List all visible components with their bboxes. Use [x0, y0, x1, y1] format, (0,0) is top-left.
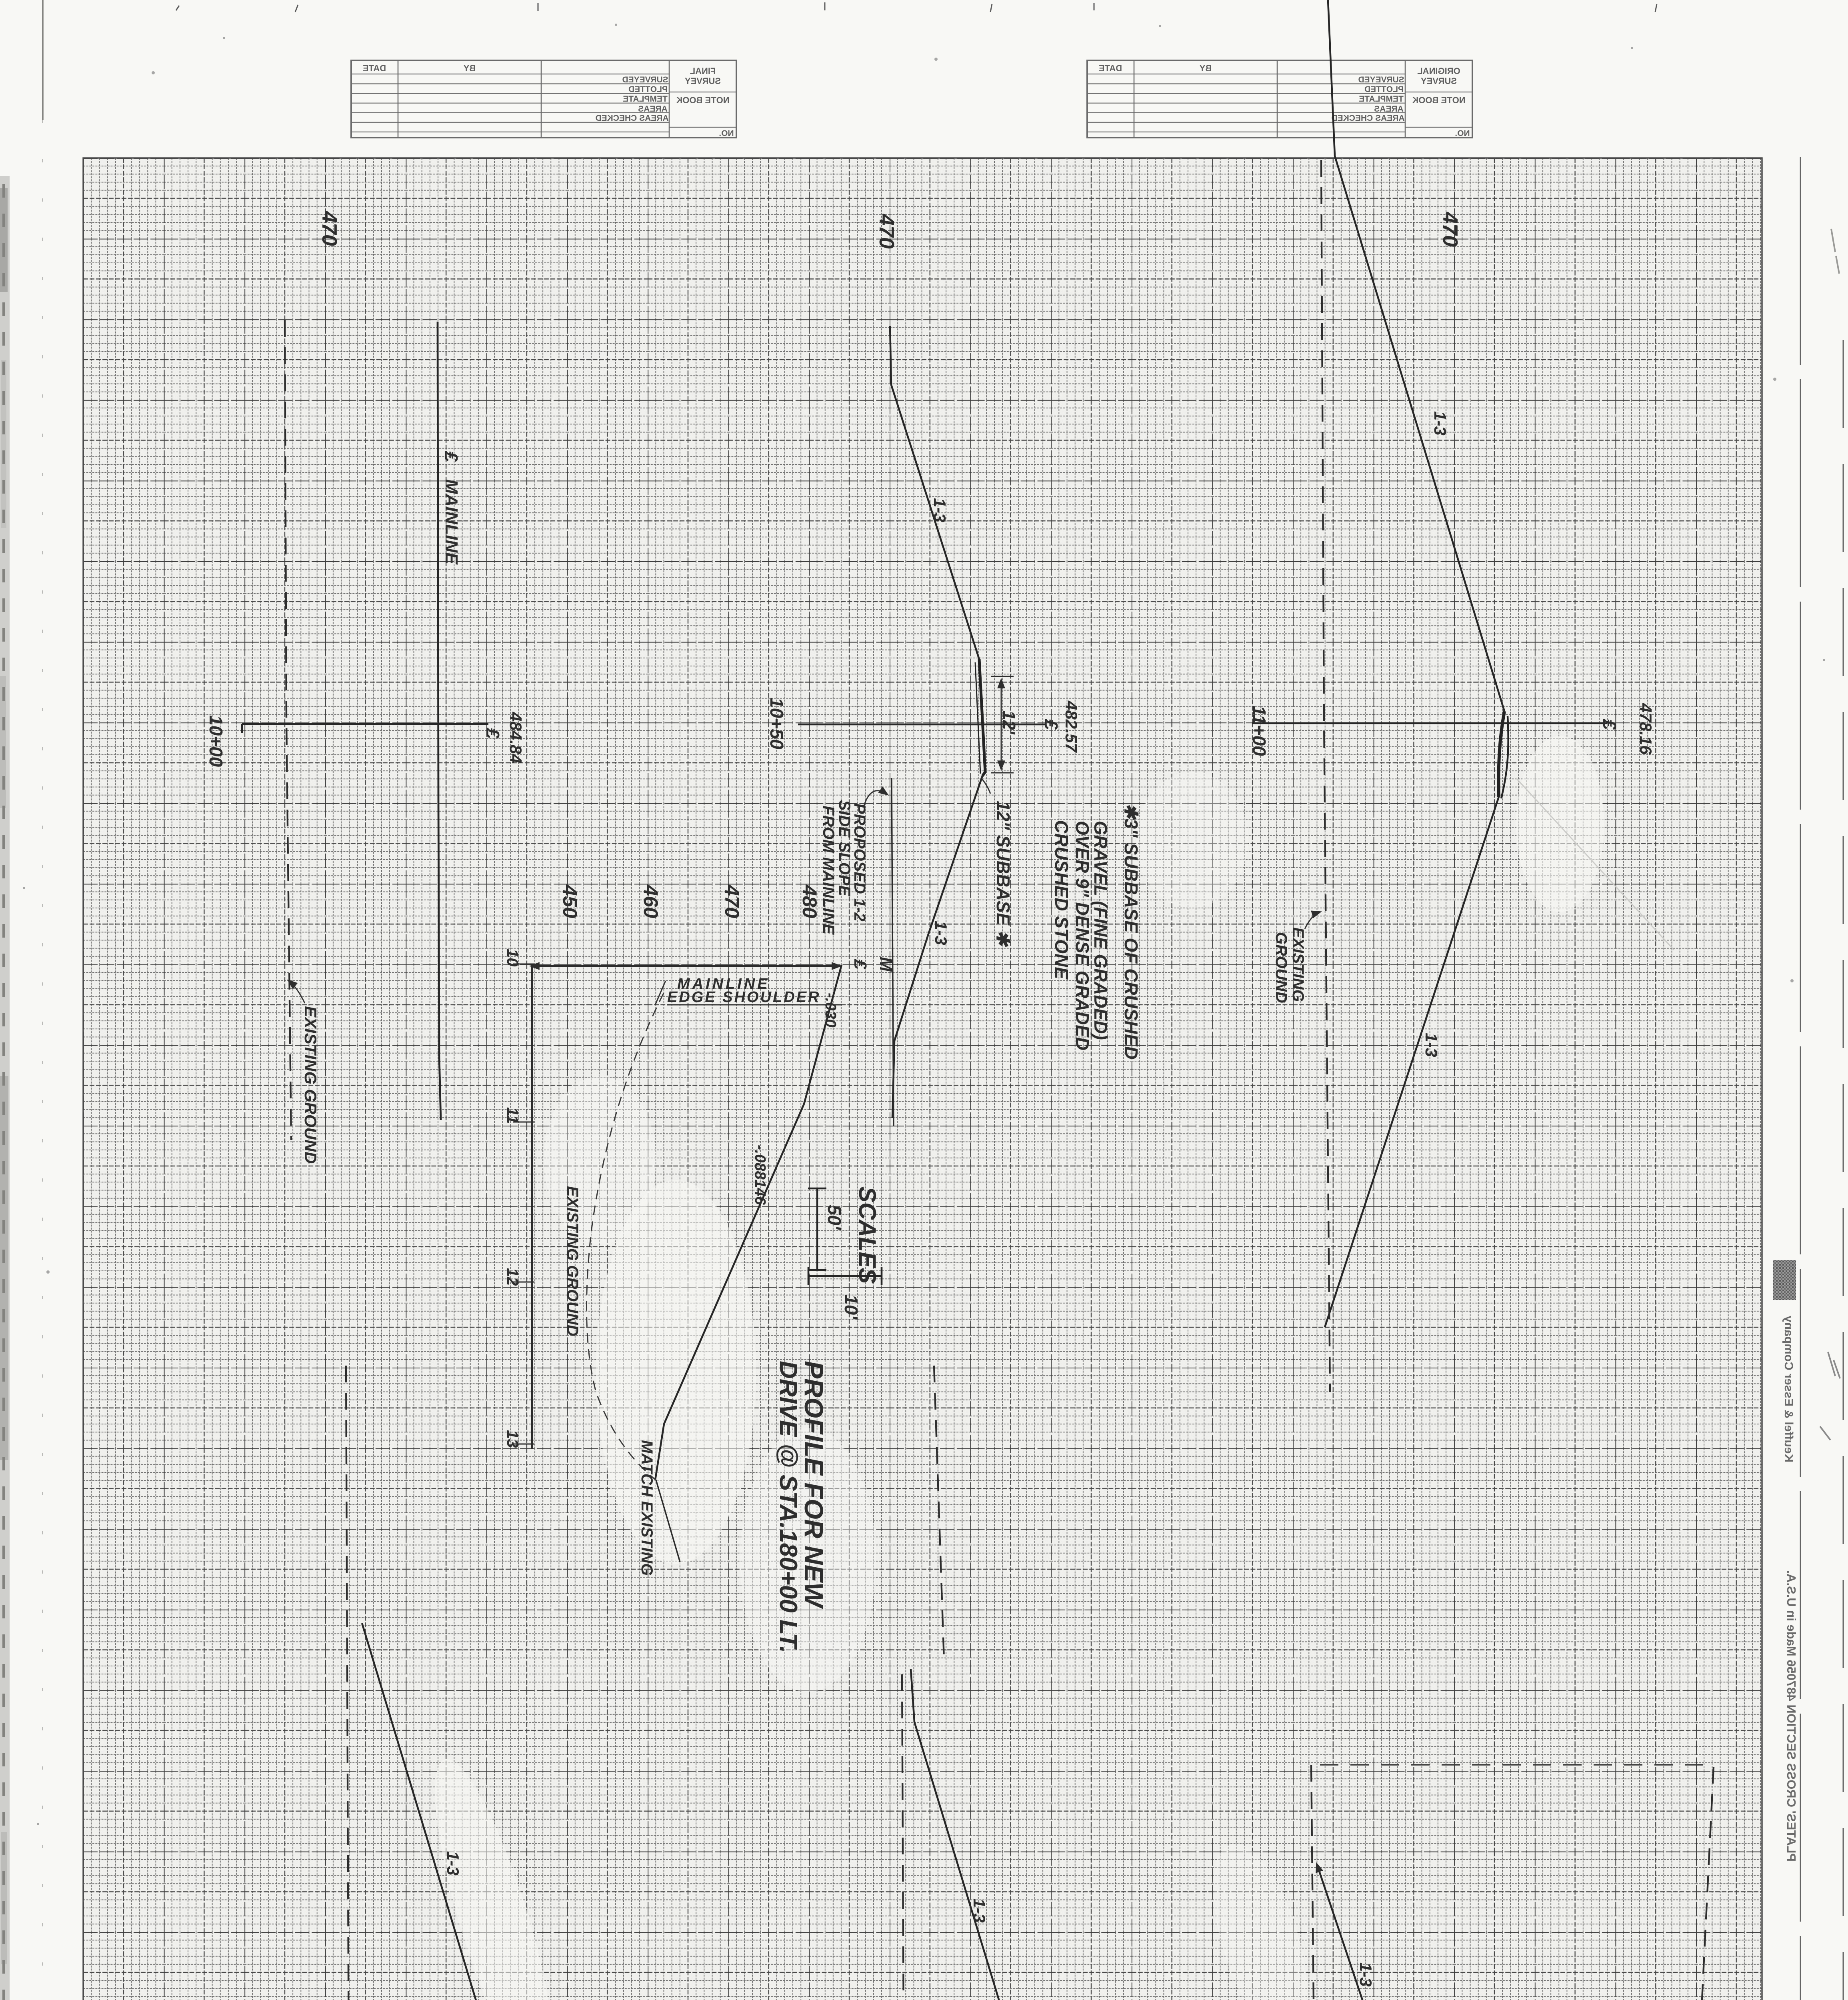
svg-text:AREAS CHECKED: AREAS CHECKED: [595, 114, 668, 123]
svg-text:AREAS: AREAS: [638, 104, 668, 114]
svg-text:FROM MAINLINE: FROM MAINLINE: [820, 806, 837, 935]
svg-text:✱3" SUBBASE OF CRUSHED: ✱3" SUBBASE OF CRUSHED: [1121, 803, 1142, 1060]
svg-text:MAINLINE: MAINLINE: [442, 479, 461, 565]
svg-text:GROUND: GROUND: [1272, 932, 1290, 1003]
svg-text:12: 12: [504, 1268, 521, 1286]
svg-text:480: 480: [798, 884, 821, 918]
svg-text:484.84: 484.84: [506, 712, 525, 763]
svg-text:470: 470: [1438, 212, 1462, 247]
svg-text:₤: ₤: [441, 450, 462, 462]
svg-text:TEMPLATE: TEMPLATE: [1359, 94, 1404, 104]
svg-text:ORIGINAL: ORIGINAL: [1417, 66, 1460, 76]
svg-text:NOTE BOOK: NOTE BOOK: [1412, 95, 1465, 105]
svg-text:OVER 9" DENSE GRADED: OVER 9" DENSE GRADED: [1072, 821, 1093, 1050]
svg-text:DATE: DATE: [363, 63, 386, 73]
svg-text:SURVEY: SURVEY: [1421, 76, 1457, 86]
svg-text:470: 470: [875, 214, 898, 249]
svg-text:DRIVE @ STA.180+00 LT.: DRIVE @ STA.180+00 LT.: [774, 1361, 802, 1653]
svg-text:10+50: 10+50: [766, 698, 787, 750]
svg-text:1-3: 1-3: [970, 1898, 989, 1923]
svg-text:TEMPLATE: TEMPLATE: [623, 94, 668, 104]
svg-text:11: 11: [504, 1107, 521, 1124]
svg-text:-.030: -.030: [822, 993, 839, 1028]
svg-text:13: 13: [504, 1430, 521, 1448]
svg-text:BY: BY: [1199, 63, 1212, 73]
svg-text:1-3: 1-3: [1422, 1033, 1441, 1057]
svg-text:AREAS: AREAS: [1374, 104, 1404, 114]
svg-text:1-3: 1-3: [1356, 1962, 1375, 1987]
svg-text:M: M: [876, 957, 896, 972]
svg-text:FINAL: FINAL: [690, 66, 716, 76]
svg-text:10': 10': [841, 1294, 862, 1320]
svg-text:SURVEYED: SURVEYED: [1358, 75, 1404, 84]
svg-text:470: 470: [721, 884, 743, 918]
svg-text:₤: ₤: [1041, 718, 1062, 730]
svg-text:11+00: 11+00: [1249, 706, 1270, 756]
svg-text:₤: ₤: [850, 958, 870, 970]
svg-text:10: 10: [504, 949, 521, 967]
svg-text:1-3: 1-3: [1431, 411, 1450, 436]
svg-text:470: 470: [318, 211, 341, 246]
svg-text:482.57: 482.57: [1062, 700, 1081, 753]
svg-text:SCALES: SCALES: [854, 1186, 881, 1284]
svg-text:SIDE SLOPE: SIDE SLOPE: [836, 800, 853, 896]
svg-text:12" SUBBASE ✱: 12" SUBBASE ✱: [993, 801, 1014, 947]
svg-text:NO.: NO.: [1455, 129, 1470, 138]
svg-text:PLOTTED: PLOTTED: [1364, 85, 1404, 94]
svg-text:₤: ₤: [482, 727, 503, 739]
svg-text:CRUSHED STONE: CRUSHED STONE: [1051, 820, 1072, 980]
svg-text:PLOTTED: PLOTTED: [628, 85, 668, 94]
svg-text:EXISTING GROUND: EXISTING GROUND: [564, 1186, 581, 1336]
svg-text:1-3: 1-3: [932, 921, 950, 945]
svg-text:Keuffel & Esser Company: Keuffel & Esser Company: [1782, 1316, 1795, 1462]
svg-text:SURVEY: SURVEY: [685, 76, 721, 86]
svg-text:DATE: DATE: [1099, 63, 1122, 73]
svg-text:450: 450: [559, 884, 581, 918]
svg-text:BY: BY: [463, 63, 476, 73]
svg-text:1-3: 1-3: [444, 1851, 462, 1876]
svg-text:MATCH EXISTING: MATCH EXISTING: [638, 1440, 656, 1576]
svg-text:478.16: 478.16: [1636, 703, 1655, 755]
svg-text:EXISTING: EXISTING: [1289, 927, 1307, 1002]
svg-text:12': 12': [999, 710, 1019, 735]
svg-text:10+00: 10+00: [206, 715, 226, 767]
svg-text:SURVEYED: SURVEYED: [622, 75, 668, 84]
svg-text:GRAVEL (FINE GRADED): GRAVEL (FINE GRADED): [1090, 821, 1111, 1040]
svg-text:PLATES' CROSS SECTION 487056: PLATES' CROSS SECTION 487056 Made in U.S…: [1784, 1570, 1798, 1862]
svg-text:NO.: NO.: [719, 129, 734, 138]
svg-text:-.088146: -.088146: [752, 1145, 768, 1205]
svg-text:₤: ₤: [1599, 718, 1620, 730]
svg-text:460: 460: [640, 884, 662, 918]
svg-text:EXISTING GROUND: EXISTING GROUND: [301, 1006, 320, 1164]
svg-text:PROFILE FOR NEW: PROFILE FOR NEW: [799, 1361, 829, 1609]
svg-text:1-3: 1-3: [930, 498, 949, 522]
svg-text:AREAS CHECKED: AREAS CHECKED: [1331, 114, 1404, 123]
svg-text:NOTE BOOK: NOTE BOOK: [676, 95, 729, 105]
svg-text:50': 50': [824, 1205, 845, 1230]
svg-text:EDGE SHOULDER: EDGE SHOULDER: [667, 989, 820, 1006]
